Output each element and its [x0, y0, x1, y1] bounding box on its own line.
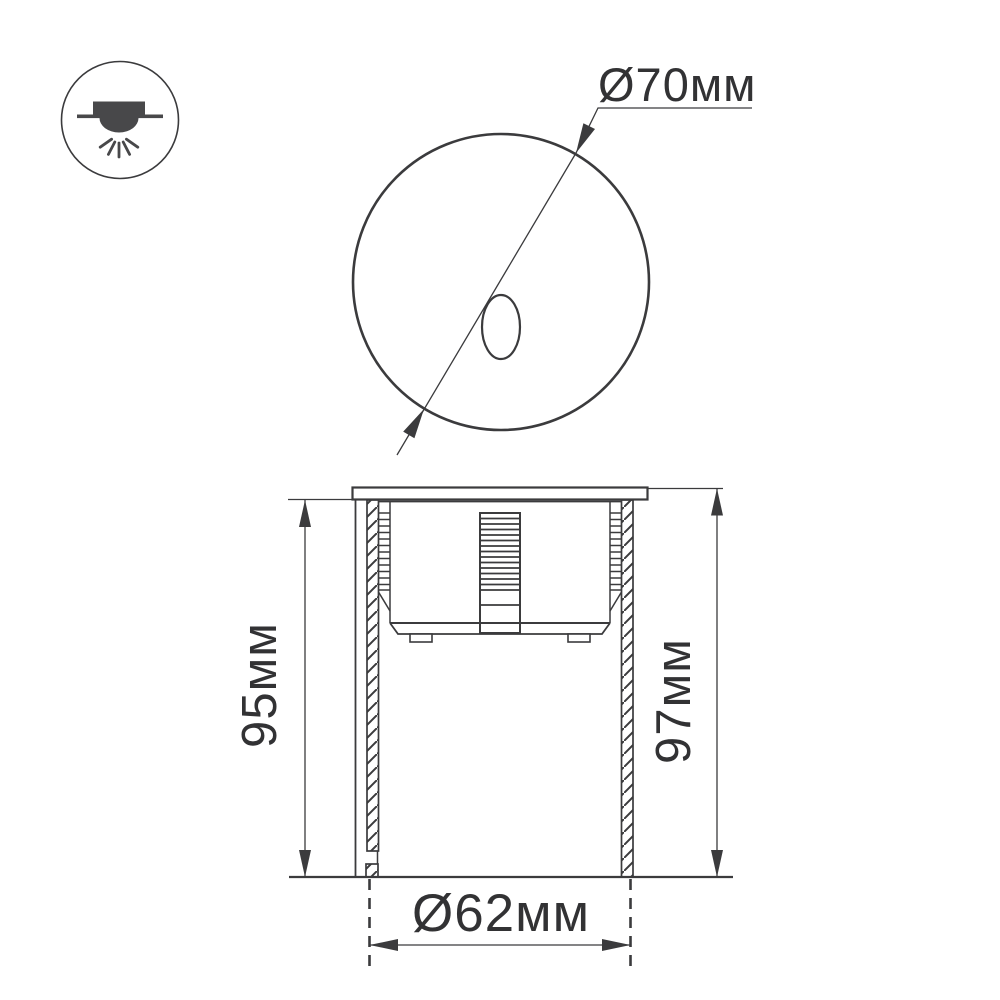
- diameter-dimension-62: Ø62мм: [370, 879, 631, 968]
- thread-ribs-left: [379, 502, 391, 623]
- arrowhead-up: [299, 500, 311, 527]
- icon-ceiling-line: [77, 115, 163, 119]
- icon-light-rays: [100, 139, 138, 157]
- icon-lamp-dome: [100, 118, 139, 133]
- height-dimension-95: 95мм: [233, 500, 311, 877]
- body-foot-right: [568, 634, 590, 642]
- front-view: Ø70мм: [353, 58, 756, 455]
- light-aperture-ellipse: [482, 295, 520, 359]
- flange-plate: [353, 488, 648, 500]
- sleeve-wall-left: [367, 500, 379, 851]
- dimension-label-bottom-diameter: Ø62мм: [412, 884, 590, 943]
- heatsink-column: [480, 513, 520, 633]
- thread-ribs-right: [610, 502, 622, 623]
- height-dimension-97: 97мм: [647, 489, 723, 878]
- sleeve-foot-left: [366, 864, 378, 877]
- arrowhead-right: [602, 939, 631, 951]
- side-view: 95мм 97мм Ø62мм: [233, 488, 733, 969]
- technical-drawing: Ø70мм: [0, 0, 1000, 1000]
- bezel-circle: [353, 134, 649, 430]
- recessed-downlight-icon: [62, 62, 179, 179]
- arrowhead-down: [711, 850, 723, 877]
- dimension-label-height-left: 95мм: [233, 622, 287, 748]
- arrowhead-up: [711, 489, 723, 516]
- drawing-canvas: Ø70мм: [0, 0, 1000, 1000]
- body-foot-left: [410, 634, 432, 642]
- dimension-label-height-right: 97мм: [647, 638, 701, 764]
- icon-recessed-housing: [93, 102, 145, 116]
- sleeve-wall-right: [622, 500, 634, 877]
- arrowhead-bottom: [403, 409, 424, 438]
- arrowhead-left: [370, 939, 399, 951]
- dimension-label-top-diameter: Ø70мм: [598, 58, 756, 111]
- arrowhead-down: [299, 850, 311, 877]
- diameter-dimension-70: Ø70мм: [397, 58, 756, 455]
- arrowhead-top: [576, 123, 595, 153]
